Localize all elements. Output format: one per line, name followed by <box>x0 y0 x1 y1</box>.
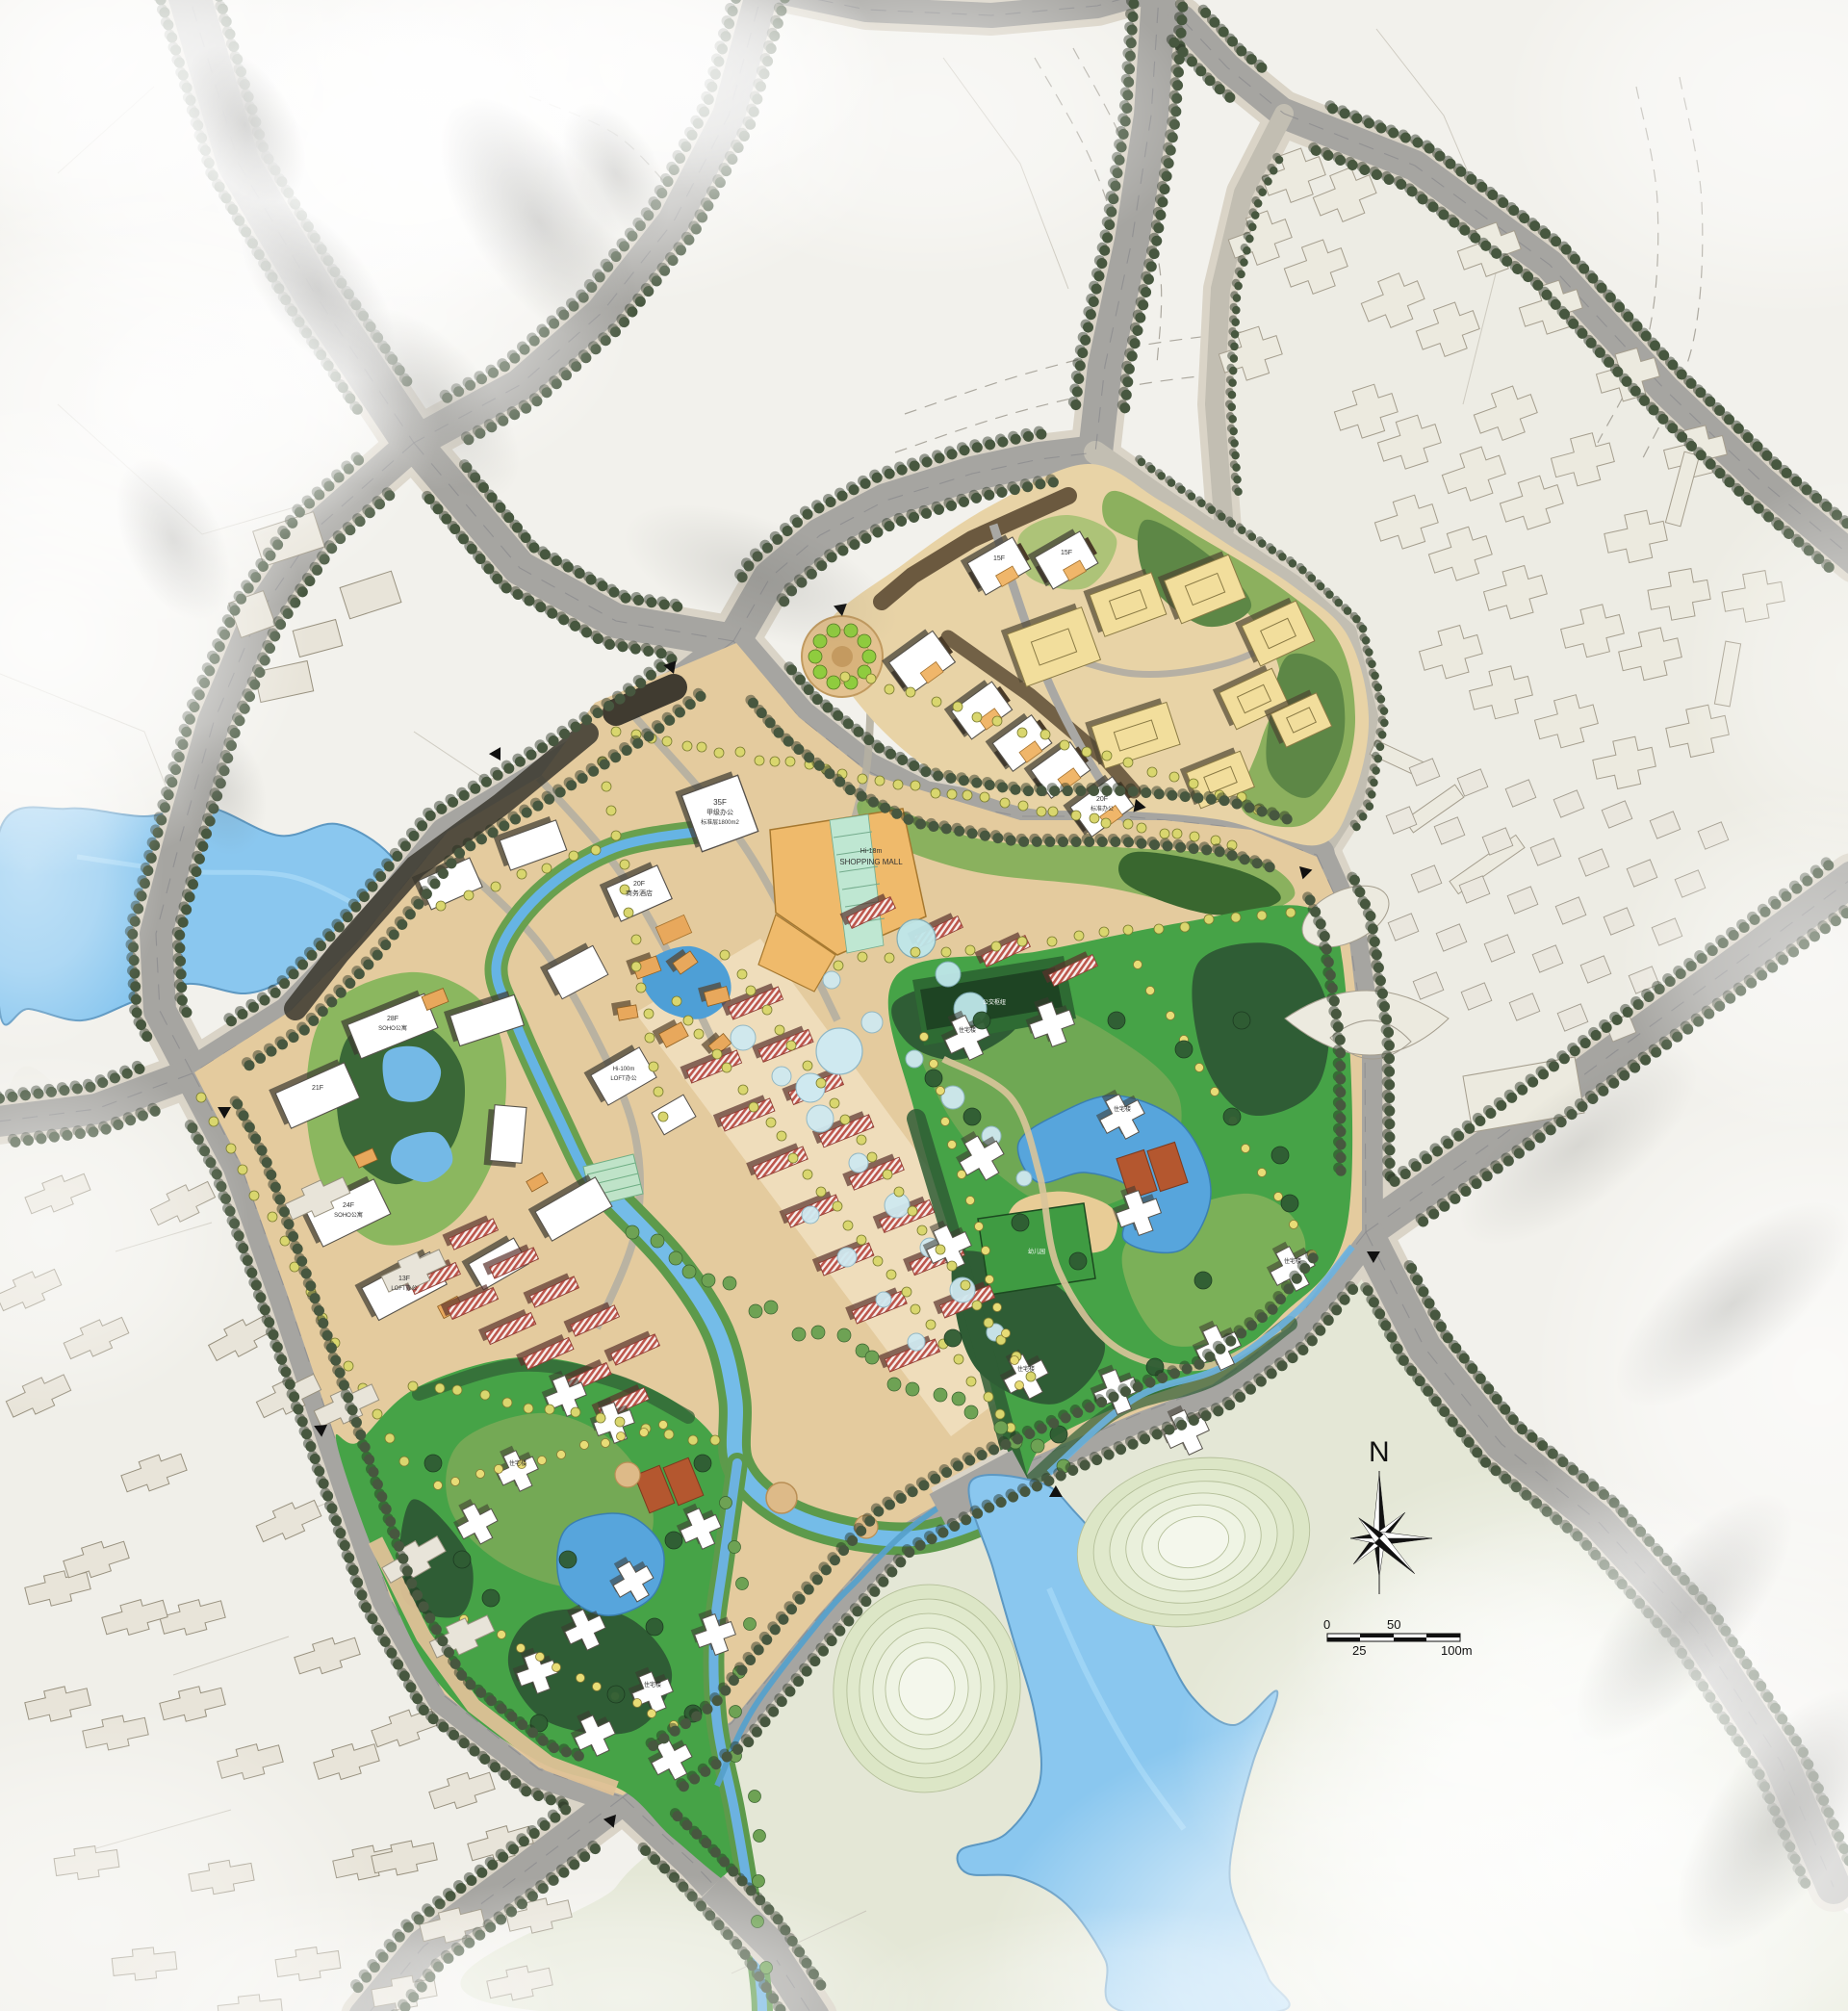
svg-text:标准层1800m2: 标准层1800m2 <box>701 818 739 826</box>
svg-text:20F: 20F <box>633 881 645 888</box>
svg-text:标准办公: 标准办公 <box>1091 805 1114 812</box>
svg-text:13F: 13F <box>398 1276 410 1282</box>
svg-text:住宅楼: 住宅楼 <box>644 1681 661 1689</box>
svg-text:Hi-100m: Hi-100m <box>613 1067 635 1072</box>
svg-text:100m: 100m <box>1441 1643 1473 1658</box>
svg-text:25: 25 <box>1352 1643 1366 1658</box>
svg-text:15F: 15F <box>993 555 1005 562</box>
svg-text:住宅楼: 住宅楼 <box>959 1026 976 1034</box>
svg-text:35F: 35F <box>713 798 727 807</box>
svg-text:Hi-18m: Hi-18m <box>860 848 883 855</box>
svg-text:SHOPPING MALL: SHOPPING MALL <box>839 858 903 866</box>
svg-text:21F: 21F <box>312 1085 323 1092</box>
svg-text:N: N <box>1369 1436 1390 1468</box>
svg-text:SOHO公寓: SOHO公寓 <box>334 1211 363 1219</box>
svg-text:商务酒店: 商务酒店 <box>626 889 653 897</box>
svg-text:50: 50 <box>1387 1617 1400 1632</box>
svg-text:24F: 24F <box>343 1202 354 1209</box>
svg-text:甲级办公: 甲级办公 <box>706 808 733 816</box>
svg-text:住宅楼: 住宅楼 <box>1017 1365 1035 1373</box>
svg-text:15F: 15F <box>1061 550 1072 556</box>
svg-text:LOFT办公: LOFT办公 <box>610 1074 636 1082</box>
svg-text:住宅楼: 住宅楼 <box>1114 1105 1131 1113</box>
svg-text:LOFT办公: LOFT办公 <box>391 1284 417 1292</box>
svg-text:0: 0 <box>1323 1617 1330 1632</box>
svg-text:住宅楼: 住宅楼 <box>509 1459 526 1467</box>
svg-text:公交枢纽: 公交枢纽 <box>983 998 1006 1006</box>
svg-text:住宅楼: 住宅楼 <box>1284 1257 1301 1265</box>
svg-text:20F: 20F <box>1096 796 1108 803</box>
svg-text:幼儿园: 幼儿园 <box>1028 1248 1045 1255</box>
svg-text:SOHO公寓: SOHO公寓 <box>378 1024 407 1032</box>
svg-text:28F: 28F <box>387 1016 398 1022</box>
